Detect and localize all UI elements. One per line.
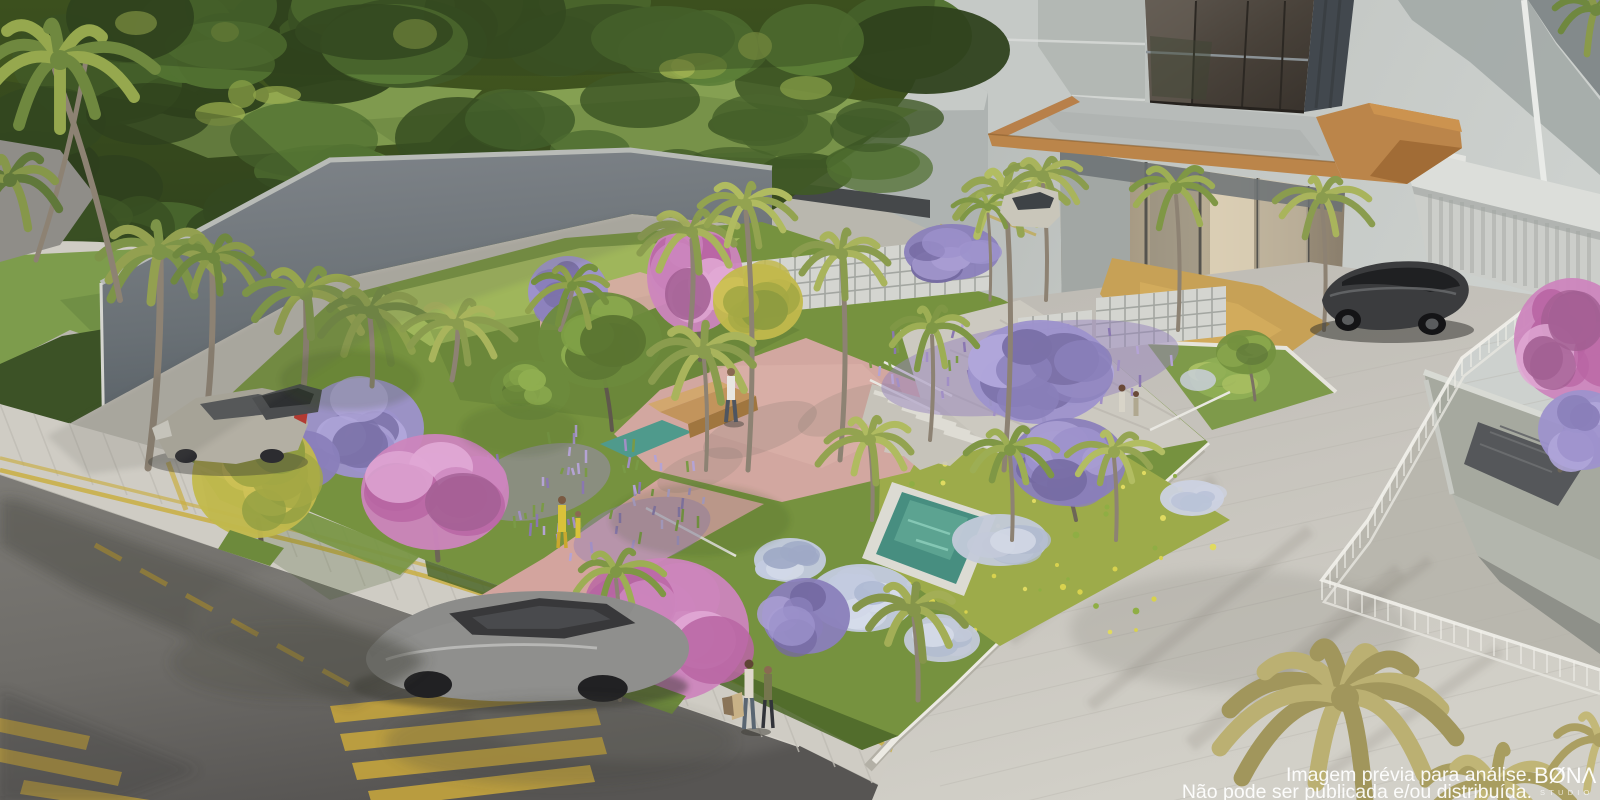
svg-text:BØNΛ: BØNΛ (1534, 763, 1597, 788)
svg-text:STUDIO: STUDIO (1540, 788, 1594, 797)
svg-text:Não pode ser publicada e/ou di: Não pode ser publicada e/ou distribuída. (1182, 781, 1532, 800)
